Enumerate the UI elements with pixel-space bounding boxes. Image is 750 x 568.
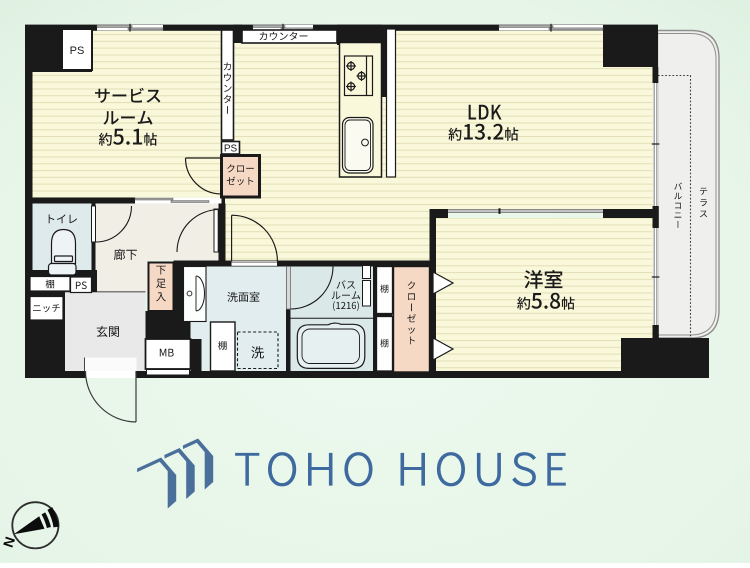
svg-text:PS: PS: [224, 144, 238, 155]
svg-text:PS: PS: [70, 45, 85, 57]
